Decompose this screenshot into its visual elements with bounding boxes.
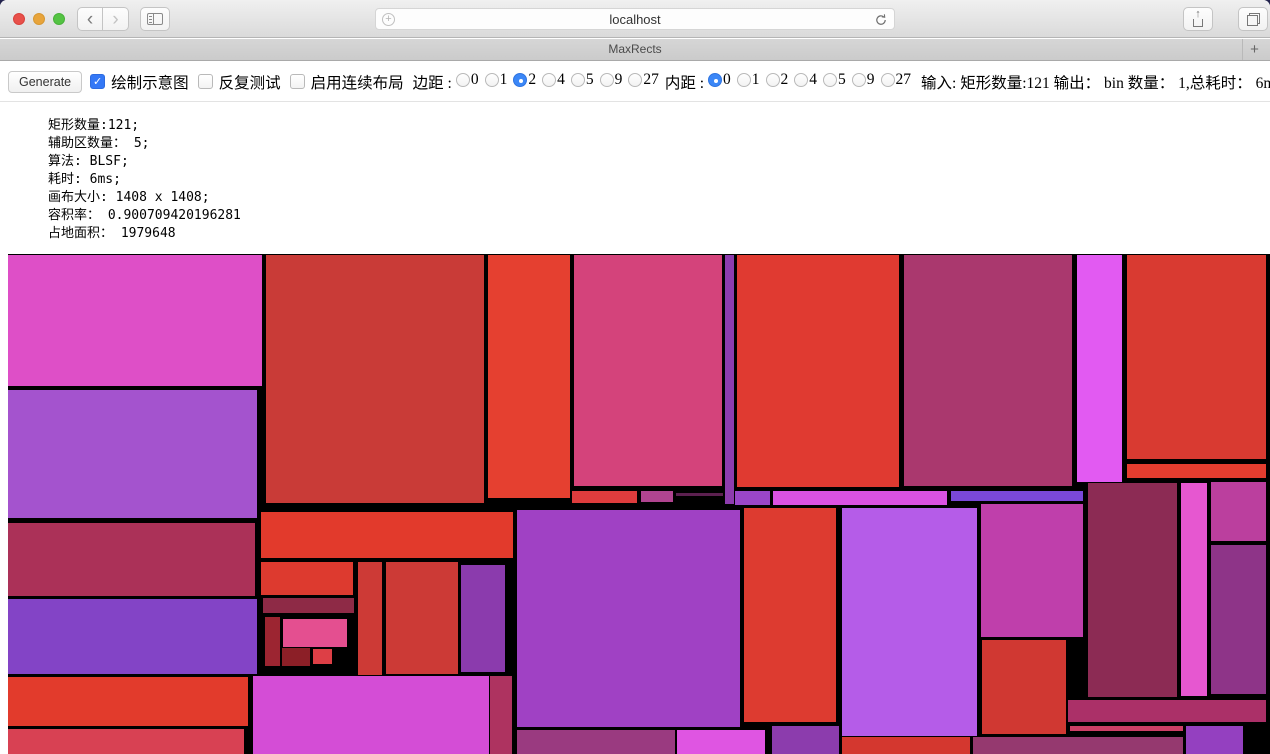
close-window-button[interactable] — [13, 13, 25, 25]
margin-radio-5[interactable] — [571, 73, 585, 87]
margin-radio-label-9: 9 — [615, 71, 623, 89]
margin-radio-item-4[interactable]: 4 — [542, 71, 565, 89]
stats-line-0: 矩形数量:121; — [48, 117, 241, 135]
margin-radio-label-27: 27 — [643, 71, 659, 89]
draw-diagram-checkbox[interactable] — [90, 74, 105, 89]
sidebar-icon — [147, 13, 163, 25]
padding-radio-label-1: 1 — [752, 71, 760, 89]
packed-rect — [1127, 255, 1266, 459]
padding-radio-0[interactable] — [708, 73, 722, 87]
packed-rect — [517, 510, 740, 727]
packed-rect — [951, 491, 1083, 501]
margin-radio-4[interactable] — [542, 73, 556, 87]
sidebar-toggle-button[interactable] — [140, 7, 170, 31]
browser-window: ‹ › + localhost ↑ — [0, 0, 1270, 754]
margin-radio-27[interactable] — [628, 73, 642, 87]
packed-rect — [676, 493, 723, 496]
packed-rect — [981, 504, 1083, 637]
margin-radio-item-5[interactable]: 5 — [571, 71, 594, 89]
packed-rect — [842, 508, 977, 736]
packed-rect — [842, 737, 970, 754]
packed-rect — [773, 491, 947, 505]
packed-rect — [8, 729, 244, 754]
packed-rect — [8, 390, 257, 518]
url-text[interactable]: localhost — [376, 12, 894, 27]
margin-radio-item-0[interactable]: 0 — [456, 71, 479, 89]
margin-radio-2[interactable] — [513, 73, 527, 87]
padding-radio-label-5: 5 — [838, 71, 846, 89]
checkbox-item-continuous[interactable]: 启用连续布局 — [290, 71, 404, 93]
draw-diagram-label: 绘制示意图 — [111, 71, 189, 93]
packed-rect — [572, 491, 637, 503]
forward-icon: › — [112, 10, 118, 29]
margin-radio-item-27[interactable]: 27 — [628, 71, 659, 89]
packed-rect — [772, 726, 839, 754]
margin-radio-1[interactable] — [485, 73, 499, 87]
packing-canvas — [8, 254, 1270, 754]
packed-rect — [1181, 483, 1207, 696]
minimize-window-button[interactable] — [33, 13, 45, 25]
packed-rect — [386, 562, 458, 674]
packed-rect — [283, 619, 347, 647]
margin-radio-label-2: 2 — [528, 71, 536, 89]
packed-rect — [1127, 464, 1266, 478]
packed-rect — [677, 730, 765, 754]
repeat-test-checkbox[interactable] — [198, 74, 213, 89]
nav-button-group: ‹ › — [77, 7, 129, 31]
packed-rect — [1211, 482, 1266, 541]
packed-rect — [490, 676, 512, 754]
tab-overview-icon — [1247, 13, 1260, 26]
packed-rect — [488, 255, 570, 498]
padding-radio-5[interactable] — [823, 73, 837, 87]
packed-rect — [266, 255, 484, 503]
padding-radio-label-27: 27 — [896, 71, 912, 89]
margin-group-label: 边距 : — [413, 71, 452, 93]
padding-radio-item-1[interactable]: 1 — [737, 71, 760, 89]
padding-radio-27[interactable] — [881, 73, 895, 87]
continuous-layout-label: 启用连续布局 — [311, 71, 404, 93]
margin-radio-label-1: 1 — [500, 71, 508, 89]
padding-radio-item-4[interactable]: 4 — [794, 71, 817, 89]
padding-radio-group: 01245927 — [708, 71, 917, 92]
packed-rect — [8, 599, 257, 674]
packed-rect — [1211, 545, 1266, 694]
stats-line-3: 耗时: 6ms; — [48, 171, 241, 189]
padding-radio-9[interactable] — [852, 73, 866, 87]
packed-rect — [261, 512, 513, 558]
address-bar[interactable]: + localhost — [375, 8, 895, 30]
packed-rect — [253, 676, 489, 754]
back-icon: ‹ — [87, 10, 93, 29]
packed-rect — [8, 677, 248, 726]
padding-radio-1[interactable] — [737, 73, 751, 87]
io-summary-text: 输入: 矩形数量:121 输出： bin 数量： 1,总耗时： 6ms — [921, 71, 1270, 93]
packed-rect — [261, 562, 353, 595]
generate-button[interactable]: Generate — [8, 71, 82, 93]
padding-radio-item-9[interactable]: 9 — [852, 71, 875, 89]
padding-radio-item-2[interactable]: 2 — [766, 71, 789, 89]
packed-rect — [517, 730, 675, 754]
padding-radio-label-4: 4 — [809, 71, 817, 89]
tab-overview-button[interactable] — [1238, 7, 1268, 31]
packed-rect — [737, 255, 899, 487]
controls-toolbar: Generate 绘制示意图 反复测试 启用连续布局 边距 : 01245927… — [0, 62, 1270, 102]
tab-maxrects[interactable]: MaxRects — [0, 42, 1270, 56]
zoom-window-button[interactable] — [53, 13, 65, 25]
packed-rect — [641, 491, 673, 502]
packed-rect — [1186, 726, 1243, 754]
padding-radio-item-27[interactable]: 27 — [881, 71, 912, 89]
packed-rect — [1077, 255, 1122, 482]
packed-rect — [265, 617, 280, 666]
padding-radio-label-2: 2 — [781, 71, 789, 89]
stats-block: 矩形数量:121;辅助区数量： 5;算法: BLSF;耗时: 6ms;画布大小:… — [48, 117, 241, 243]
margin-radio-0[interactable] — [456, 73, 470, 87]
share-icon: ↑ — [1192, 12, 1204, 27]
reload-button[interactable] — [874, 13, 888, 27]
margin-radio-label-0: 0 — [471, 71, 479, 89]
padding-radio-item-0[interactable]: 0 — [708, 71, 731, 89]
padding-radio-item-5[interactable]: 5 — [823, 71, 846, 89]
padding-radio-4[interactable] — [794, 73, 808, 87]
packed-rect — [1068, 700, 1266, 722]
packed-rect — [282, 648, 310, 666]
padding-radio-2[interactable] — [766, 73, 780, 87]
stats-line-6: 占地面积： 1979648 — [48, 225, 241, 243]
reload-icon — [874, 13, 888, 27]
repeat-test-label: 反复测试 — [219, 71, 281, 93]
margin-radio-group: 01245927 — [456, 71, 665, 92]
packed-rect — [982, 640, 1066, 734]
margin-radio-item-9[interactable]: 9 — [600, 71, 623, 89]
packed-rect — [8, 255, 262, 386]
stats-line-2: 算法: BLSF; — [48, 153, 241, 171]
padding-radio-label-0: 0 — [723, 71, 731, 89]
margin-radio-9[interactable] — [600, 73, 614, 87]
packed-rect — [725, 255, 734, 504]
back-button[interactable]: ‹ — [77, 7, 103, 31]
packed-rect — [263, 598, 354, 613]
stats-line-5: 容积率： 0.900709420196281 — [48, 207, 241, 225]
packed-rect — [1070, 726, 1183, 731]
margin-radio-item-1[interactable]: 1 — [485, 71, 508, 89]
margin-radio-item-2[interactable]: 2 — [513, 71, 536, 89]
margin-radio-label-4: 4 — [557, 71, 565, 89]
title-bar: ‹ › + localhost ↑ — [0, 0, 1270, 38]
packed-rect — [904, 255, 1072, 486]
new-tab-button[interactable]: + — [1242, 39, 1266, 60]
packed-rect — [744, 508, 836, 722]
packed-rect — [735, 491, 770, 505]
forward-button[interactable]: › — [103, 7, 129, 31]
checkbox-item-draw[interactable]: 绘制示意图 — [90, 71, 189, 93]
padding-group-label: 内距 : — [665, 71, 704, 93]
packed-rect — [461, 565, 505, 672]
stats-line-1: 辅助区数量： 5; — [48, 135, 241, 153]
packed-rect — [8, 523, 255, 596]
continuous-layout-checkbox[interactable] — [290, 74, 305, 89]
packed-rect — [574, 255, 722, 486]
packed-rect — [313, 649, 332, 664]
tab-bar: MaxRects + — [0, 39, 1270, 61]
padding-radio-label-9: 9 — [867, 71, 875, 89]
share-button[interactable]: ↑ — [1183, 7, 1213, 31]
packed-rect — [358, 562, 382, 675]
checkbox-item-repeat[interactable]: 反复测试 — [198, 71, 281, 93]
stats-line-4: 画布大小: 1408 x 1408; — [48, 189, 241, 207]
packed-rect — [1088, 483, 1177, 697]
packed-rect — [973, 737, 1183, 754]
margin-radio-label-5: 5 — [586, 71, 594, 89]
